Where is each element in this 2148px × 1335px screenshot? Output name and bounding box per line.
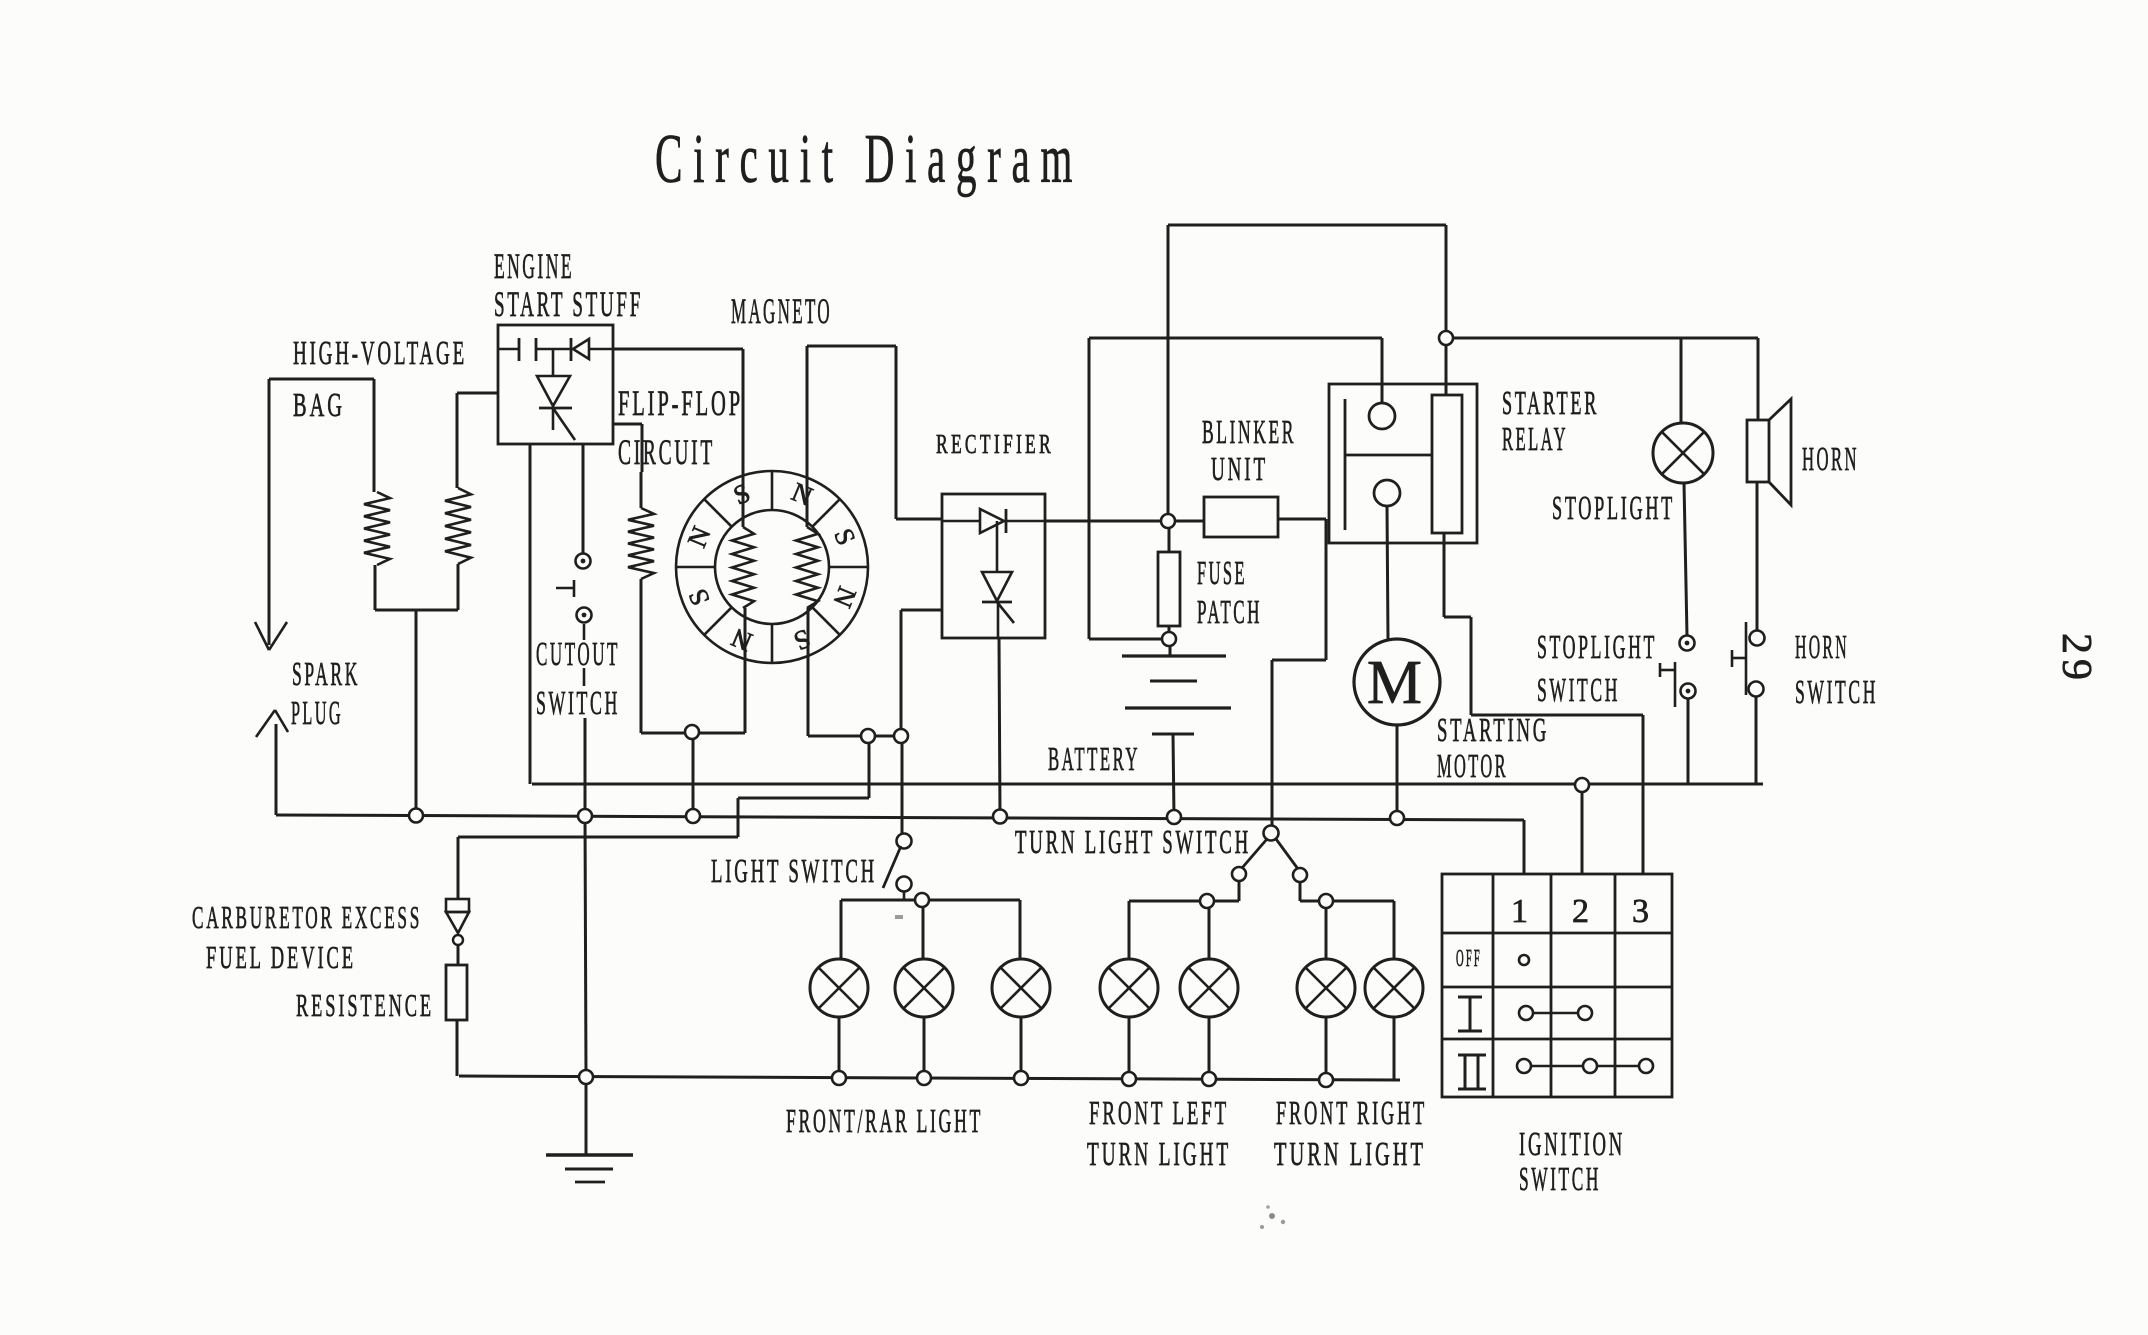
svg-text:TURN LIGHT: TURN LIGHT (1274, 1136, 1426, 1173)
svg-text:SWITCH: SWITCH (1795, 674, 1878, 711)
svg-text:SWITCH: SWITCH (536, 685, 620, 722)
svg-text:2: 2 (1572, 893, 1594, 930)
svg-text:LIGHT SWITCH: LIGHT SWITCH (711, 853, 877, 890)
svg-text:BATTERY: BATTERY (1048, 741, 1140, 778)
svg-text:HIGH-VOLTAGE: HIGH-VOLTAGE (293, 335, 467, 372)
svg-text:Circuit Diagram: Circuit Diagram (655, 121, 1083, 198)
svg-text:FUSE: FUSE (1197, 555, 1247, 592)
svg-text:MAGNETO: MAGNETO (731, 291, 832, 331)
svg-text:START STUFF: START STUFF (494, 284, 643, 324)
svg-text:FRONT/RAR LIGHT: FRONT/RAR LIGHT (786, 1103, 983, 1140)
svg-text:MOTOR: MOTOR (1437, 748, 1508, 785)
svg-text:IGNITION: IGNITION (1519, 1126, 1625, 1163)
svg-text:CIRCUIT: CIRCUIT (618, 432, 715, 472)
svg-text:OFF: OFF (1456, 946, 1482, 972)
svg-text:FUEL DEVICE: FUEL DEVICE (206, 939, 356, 975)
svg-text:PLUG: PLUG (291, 695, 343, 732)
svg-text:FRONT RIGHT: FRONT RIGHT (1276, 1095, 1427, 1132)
svg-text:RELAY: RELAY (1502, 421, 1568, 458)
svg-text:BAG: BAG (293, 387, 345, 424)
svg-text:SPARK: SPARK (292, 656, 360, 693)
svg-text:3: 3 (1632, 893, 1654, 930)
svg-text:HORN: HORN (1802, 441, 1859, 478)
svg-text:RECTIFIER: RECTIFIER (936, 429, 1054, 459)
svg-text:SWITCH: SWITCH (1537, 672, 1620, 709)
svg-text:RESISTENCE: RESISTENCE (296, 987, 434, 1023)
svg-text:1: 1 (1511, 893, 1533, 930)
svg-text:HORN: HORN (1795, 629, 1849, 666)
svg-text:FRONT LEFT: FRONT LEFT (1089, 1095, 1229, 1132)
svg-text:29: 29 (2053, 633, 2099, 685)
svg-text:STOPLIGHT: STOPLIGHT (1552, 490, 1675, 527)
svg-text:ENGINE: ENGINE (494, 246, 574, 286)
svg-text:M: M (1367, 649, 1427, 717)
svg-text:CUTOUT: CUTOUT (536, 636, 620, 673)
svg-text:SWITCH: SWITCH (1519, 1161, 1601, 1198)
svg-text:STARTER: STARTER (1502, 385, 1599, 422)
svg-text:UNIT: UNIT (1211, 451, 1268, 488)
svg-text:BLINKER: BLINKER (1202, 414, 1296, 451)
svg-text:FLIP-FLOP: FLIP-FLOP (618, 383, 743, 423)
svg-text:STARTING: STARTING (1437, 712, 1549, 749)
svg-text:PATCH: PATCH (1197, 594, 1262, 631)
svg-text:CARBURETOR EXCESS: CARBURETOR EXCESS (192, 899, 422, 935)
svg-text:STOPLIGHT: STOPLIGHT (1537, 629, 1657, 666)
svg-text:TURN LIGHT: TURN LIGHT (1087, 1136, 1231, 1173)
svg-text:TURN LIGHT SWITCH: TURN LIGHT SWITCH (1015, 824, 1251, 861)
